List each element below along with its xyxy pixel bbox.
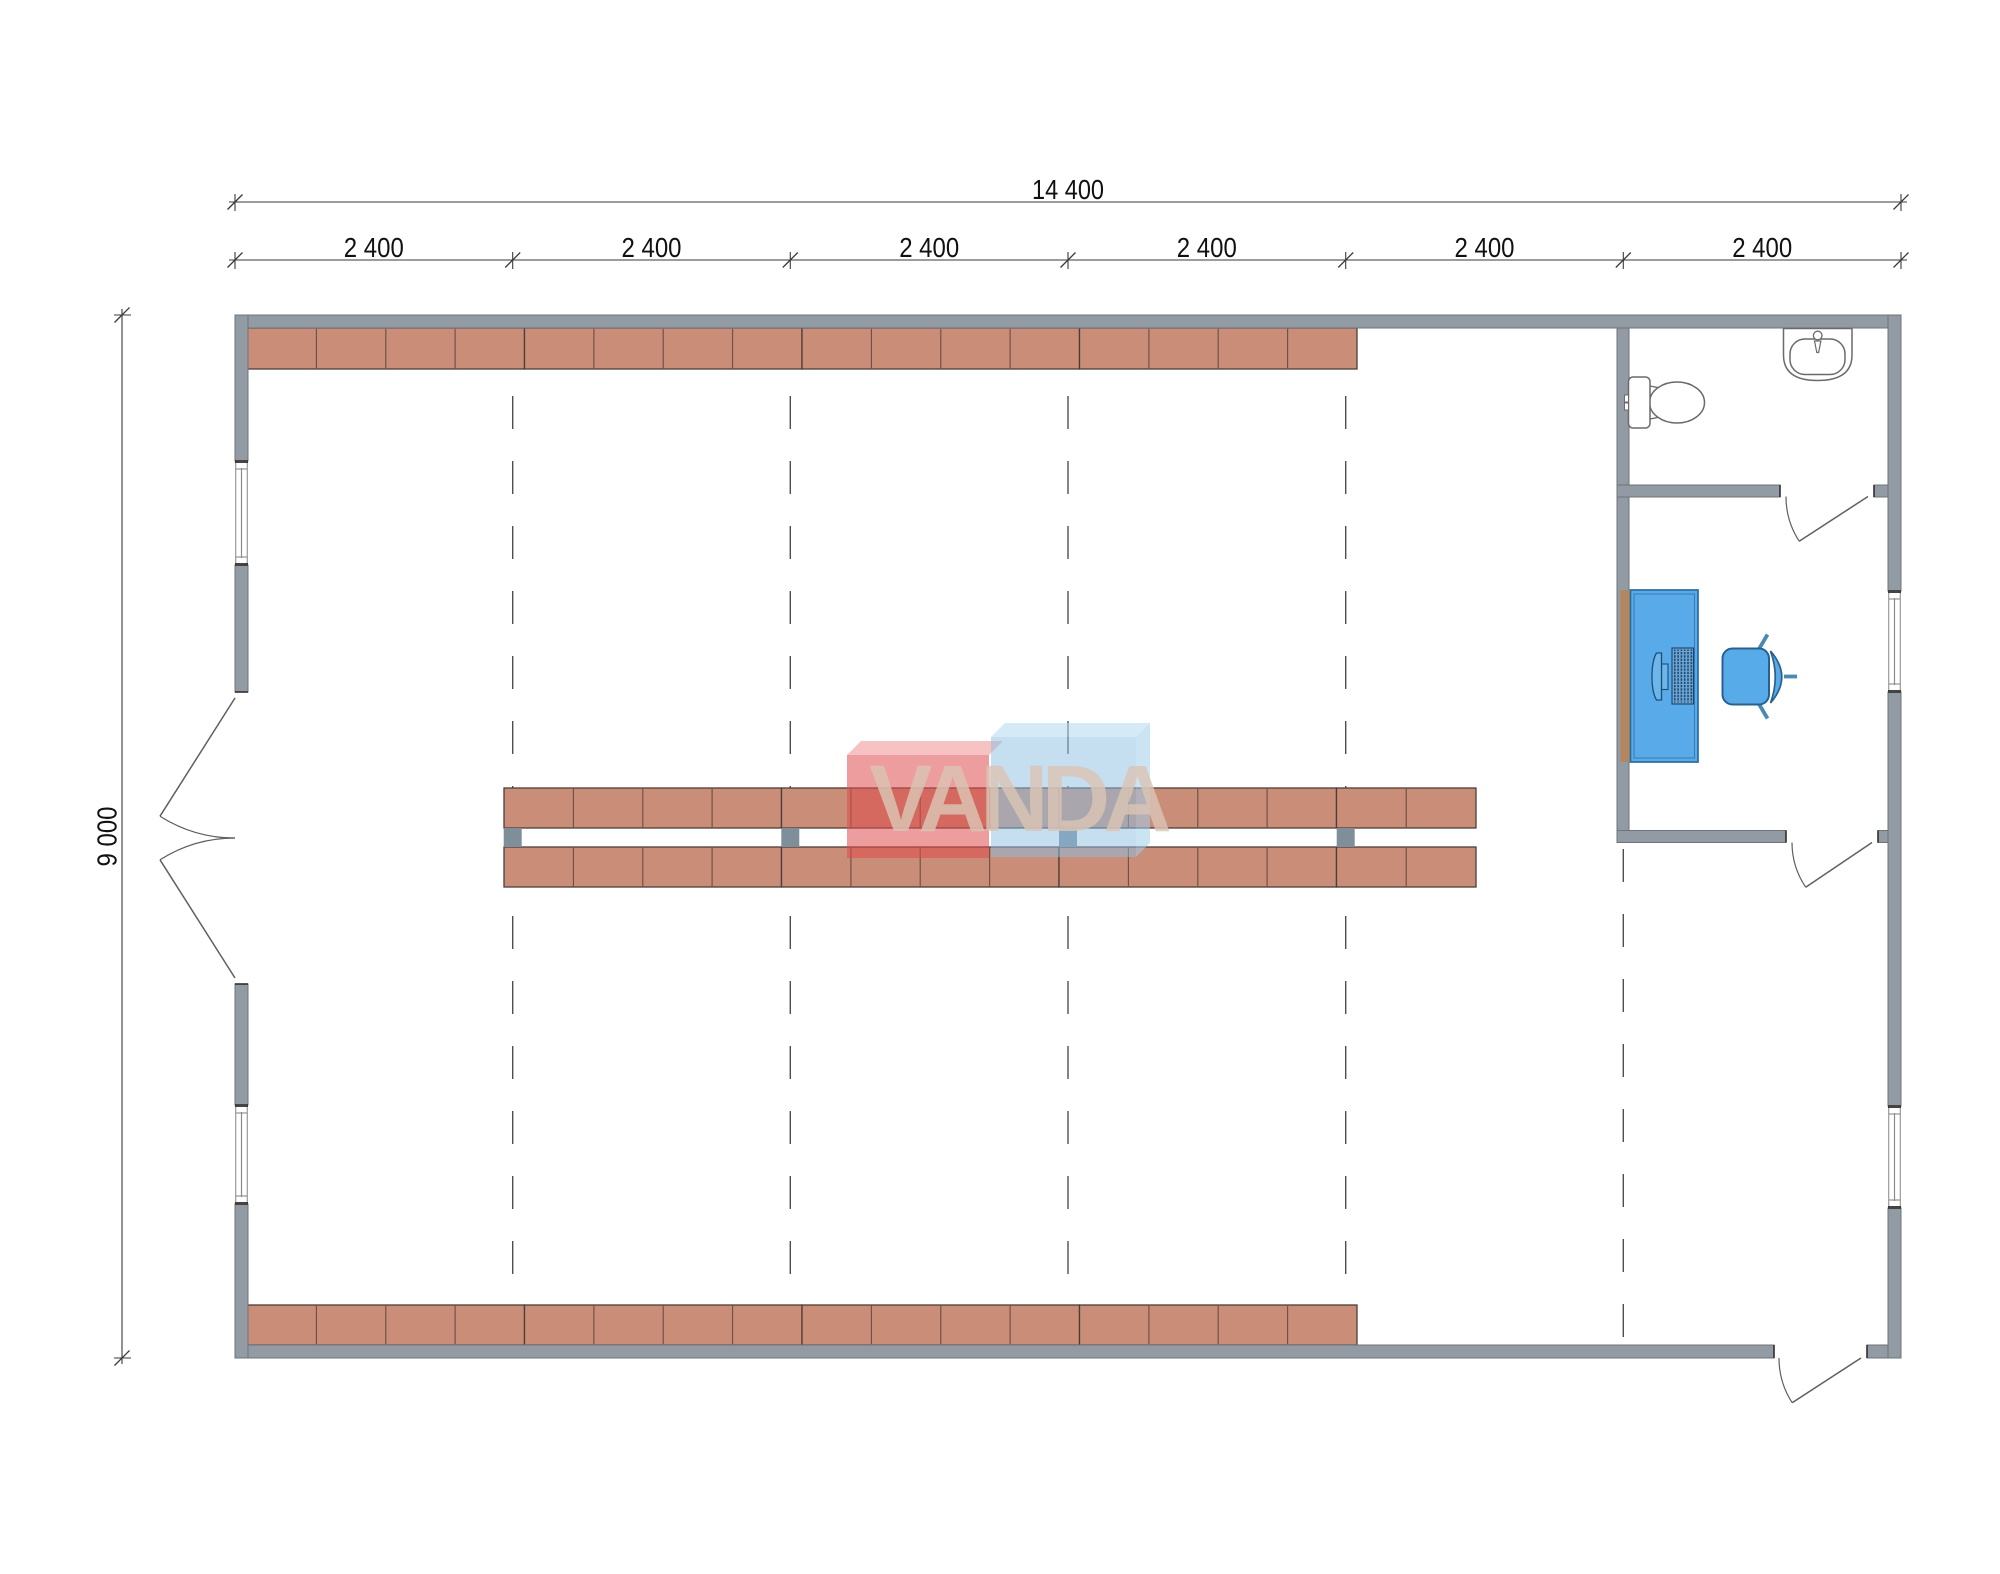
svg-text:2 400: 2 400 bbox=[622, 232, 682, 263]
svg-text:2 400: 2 400 bbox=[1177, 232, 1237, 263]
svg-text:14 400: 14 400 bbox=[1032, 174, 1104, 205]
svg-text:2 400: 2 400 bbox=[899, 232, 959, 263]
svg-text:2 400: 2 400 bbox=[1732, 232, 1792, 263]
svg-text:VANDA: VANDA bbox=[869, 746, 1170, 852]
svg-text:2 400: 2 400 bbox=[1455, 232, 1515, 263]
svg-text:9 000: 9 000 bbox=[92, 807, 123, 867]
svg-text:2 400: 2 400 bbox=[344, 232, 404, 263]
